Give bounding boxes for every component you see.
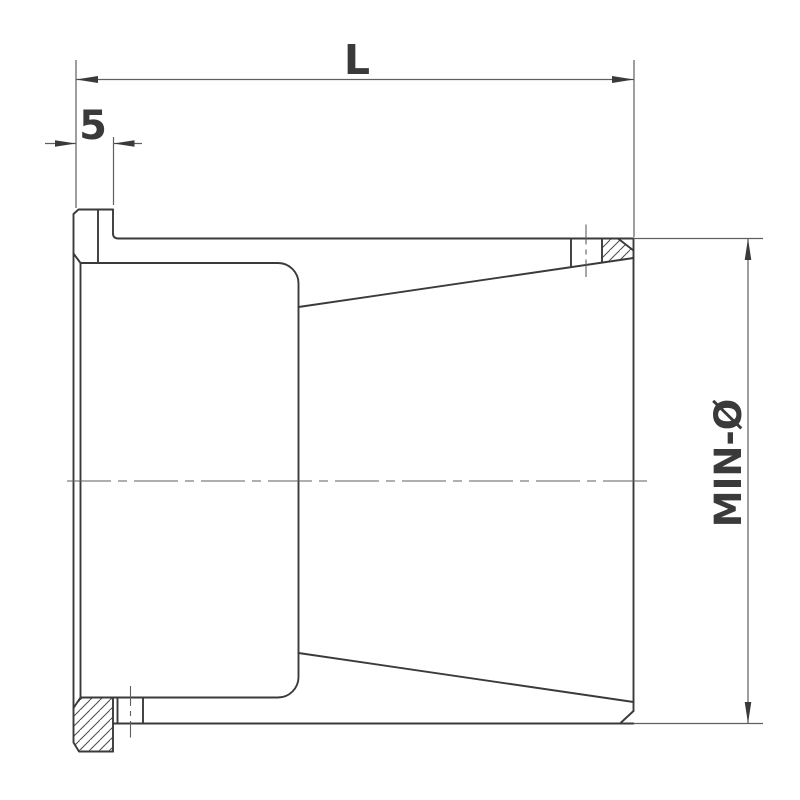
section-hatches (74, 239, 634, 752)
cone-line-top (299, 258, 634, 307)
hatch-flange-section (74, 698, 114, 752)
sleeve-section-drawing: L 5 MIN-Ø (0, 0, 800, 800)
chamfer-bottom-right (620, 711, 634, 724)
cone-line-bottom (299, 653, 634, 702)
dim-flange-width: 5 (45, 103, 142, 205)
dim-diameter-arrow-bottom (745, 702, 752, 724)
bore-chamfer-top (74, 254, 81, 264)
centerlines (67, 225, 648, 738)
flange-right-face-top (113, 210, 119, 239)
dim-label-length: L (344, 36, 370, 84)
dim-flange-arrow-right (114, 140, 135, 147)
technical-drawing-canvas: L 5 MIN-Ø (0, 0, 800, 800)
dim-length-arrow-left (76, 76, 98, 83)
dim-label-min-diameter: MIN-Ø (707, 399, 750, 527)
dim-min-diameter: MIN-Ø (634, 239, 764, 724)
dim-length: L (76, 36, 634, 237)
dim-flange-arrow-left (55, 140, 76, 147)
bore-outline (81, 263, 299, 698)
dim-diameter-arrow-top (745, 239, 752, 261)
dim-length-arrow-right (612, 76, 634, 83)
dim-label-flange-width: 5 (79, 103, 107, 149)
